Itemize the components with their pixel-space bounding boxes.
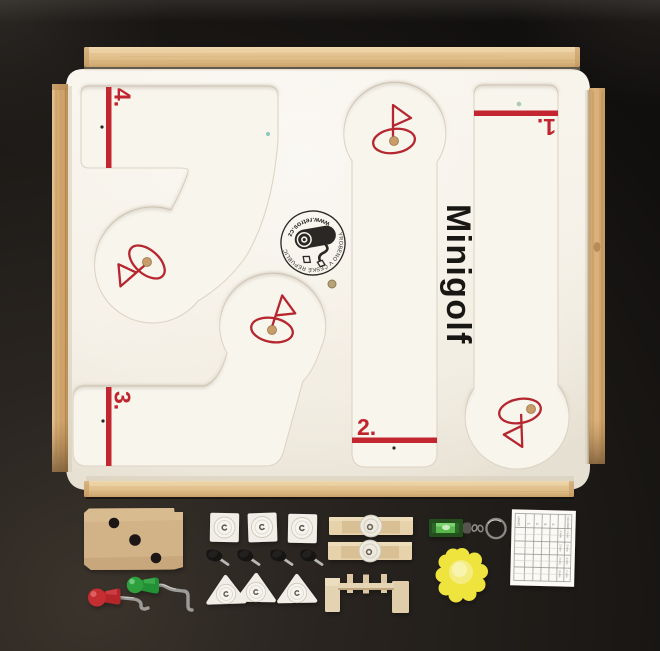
- svg-text:HRÁČI: HRÁČI: [517, 516, 522, 526]
- svg-text:3.: 3.: [543, 523, 547, 526]
- svg-text:2.kolo: 2.kolo: [566, 531, 570, 539]
- svg-text:4.kolo: 4.kolo: [565, 557, 569, 565]
- svg-text:4.: 4.: [110, 88, 136, 107]
- svg-text:1.kolo: 1.kolo: [565, 570, 569, 578]
- svg-text:1.kolo: 1.kolo: [559, 530, 563, 538]
- svg-text:4.kolo: 4.kolo: [558, 570, 562, 578]
- svg-text:3.kolo: 3.kolo: [565, 544, 569, 552]
- svg-text:3.kolo: 3.kolo: [558, 557, 562, 565]
- svg-text:CELKEM: CELKEM: [566, 517, 570, 530]
- svg-text:2.kolo: 2.kolo: [558, 544, 562, 552]
- svg-text:4.: 4.: [551, 523, 555, 526]
- svg-text:1.: 1.: [527, 523, 531, 526]
- svg-text:3.: 3.: [110, 391, 136, 410]
- svg-text:Minigolf: Minigolf: [439, 204, 477, 345]
- svg-text:1.: 1.: [537, 114, 556, 140]
- svg-text:2.: 2.: [535, 523, 539, 526]
- svg-text:2.: 2.: [357, 414, 376, 440]
